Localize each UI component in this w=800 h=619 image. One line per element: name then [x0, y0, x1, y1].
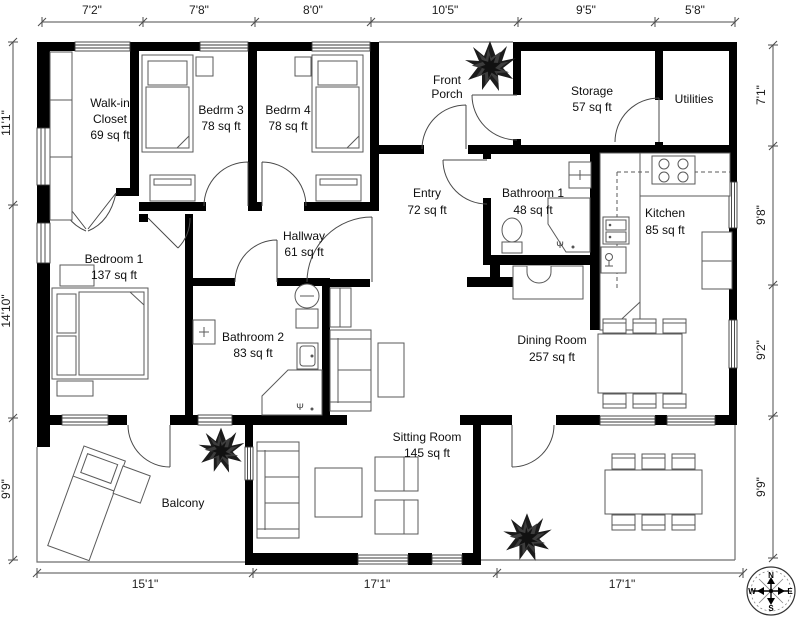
floor-plan-page: 7'2" 7'8" 8'0" 10'5" 9'5" 5'8" 11'1" 14'… [0, 0, 800, 619]
room-name: Porch [431, 87, 462, 101]
window [37, 128, 50, 185]
toilet-icon [295, 284, 319, 328]
dim-right-3: 9'2" [754, 340, 768, 360]
armchair [375, 500, 418, 534]
compass-south: S [768, 604, 774, 613]
furniture: Ψ Ψ [48, 52, 732, 561]
compass-rose: N S W E [747, 567, 795, 615]
sun-lounger [48, 446, 126, 561]
room-area: 257 sq ft [529, 350, 576, 364]
window [62, 415, 108, 425]
room-label-bathroom1: Bathroom 1 48 sq ft [502, 186, 564, 217]
room-name: Bedrm 4 [265, 103, 311, 117]
room-label-walk-in-closet: Walk-in Closet 69 sq ft [90, 96, 130, 142]
dim-right-1: 7'1" [754, 85, 768, 105]
room-area: 72 sq ft [407, 203, 447, 217]
bed-bench [57, 381, 93, 396]
plant-icon [503, 513, 552, 561]
dim-top-5: 9'5" [576, 3, 596, 17]
room-name: Bedrm 3 [198, 103, 244, 117]
stove-icon [652, 156, 695, 184]
plant-icon [465, 41, 516, 92]
window [198, 415, 232, 425]
sink-icon [297, 343, 318, 369]
room-label-storage: Storage 57 sq ft [571, 84, 613, 114]
floor-plan-canvas: 7'2" 7'8" 8'0" 10'5" 9'5" 5'8" 11'1" 14'… [0, 0, 800, 619]
dim-right-2: 9'8" [754, 205, 768, 225]
room-name: Bedroom 1 [85, 252, 144, 266]
window [667, 416, 715, 425]
compass-east: E [787, 587, 793, 596]
balcony-door [128, 425, 170, 467]
sofa [257, 442, 299, 538]
shower: Ψ [262, 370, 322, 415]
bedroom1-door [148, 218, 190, 248]
dim-left-1: 11'1" [0, 110, 13, 136]
room-label-dining-room: Dining Room 257 sq ft [517, 333, 586, 364]
dim-top-4: 10'5" [432, 3, 459, 17]
kitchen-sink-icon [603, 217, 629, 244]
room-area: 48 sq ft [513, 203, 553, 217]
room-name: Dining Room [517, 333, 586, 347]
dim-bottom-1: 15'1" [132, 577, 159, 591]
window [600, 416, 655, 425]
room-name: Closet [93, 112, 128, 126]
room-label-entry: Entry 72 sq ft [407, 186, 447, 217]
dresser [60, 265, 94, 286]
dishwasher-icon [601, 247, 626, 273]
vanity-sink [193, 320, 215, 344]
window [245, 447, 253, 480]
dim-left-2: 14'10" [0, 294, 13, 327]
double-bed [52, 288, 148, 379]
window [200, 42, 248, 51]
room-area: 78 sq ft [201, 119, 241, 133]
room-label-front-porch: Front Porch [431, 73, 462, 101]
bathroom1-door [443, 160, 487, 204]
bedrm3-door [204, 162, 248, 206]
bathroom2-door [235, 240, 277, 282]
bathroom-cabinet [569, 162, 591, 188]
patio-table [605, 454, 702, 530]
room-area: 137 sq ft [91, 268, 138, 282]
window [358, 555, 408, 564]
nightstand [295, 57, 311, 76]
room-name: Entry [413, 186, 441, 200]
compass-west: W [748, 587, 756, 596]
fridge-icon [702, 232, 732, 289]
side-table [378, 343, 404, 397]
dim-left-3: 9'9" [0, 479, 13, 499]
armchair [375, 457, 418, 491]
dim-top-1: 7'2" [82, 3, 102, 17]
single-bed [142, 55, 193, 152]
dim-right-4: 9'9" [754, 477, 768, 497]
dim-top-3: 8'0" [303, 3, 323, 17]
room-label-bedrm3: Bedrm 3 78 sq ft [198, 103, 244, 133]
dim-top-2: 7'8" [189, 3, 209, 17]
room-area: 78 sq ft [268, 119, 308, 133]
storage-utilities-door [615, 98, 659, 142]
room-name: Bathroom 2 [222, 330, 284, 344]
room-name: Sitting Room [393, 430, 462, 444]
compass-north: N [768, 571, 774, 580]
room-name: Bathroom 1 [502, 186, 564, 200]
window [729, 320, 737, 368]
wardrobe [316, 175, 361, 201]
dim-bottom-2: 17'1" [364, 577, 391, 591]
sofa [330, 330, 371, 411]
coffee-table [315, 468, 362, 517]
room-area: 145 sq ft [404, 446, 451, 460]
bedrm4-door [262, 162, 306, 206]
shower-head-icon: Ψ [296, 402, 304, 412]
single-bed [312, 55, 363, 152]
front-door [422, 105, 466, 149]
wardrobe [150, 175, 195, 201]
desk-with-chair [513, 266, 583, 299]
room-label-kitchen: Kitchen 85 sq ft [645, 206, 685, 237]
shower: Ψ [548, 198, 590, 252]
room-label-sitting-room: Sitting Room 145 sq ft [393, 430, 462, 460]
room-label-bedrm4: Bedrm 4 78 sq ft [265, 103, 311, 133]
room-label-utilities: Utilities [675, 92, 714, 106]
window [312, 42, 370, 51]
shower-head-icon: Ψ [556, 240, 564, 250]
room-label-bathroom2: Bathroom 2 83 sq ft [222, 330, 284, 360]
patio-door [512, 425, 554, 467]
room-area: 85 sq ft [645, 223, 685, 237]
room-name: Storage [571, 84, 613, 98]
window [75, 42, 130, 51]
room-area: 69 sq ft [90, 128, 130, 142]
dining-table [598, 319, 686, 408]
room-label-balcony: Balcony [162, 496, 205, 510]
room-name: Front [433, 73, 462, 87]
dim-top-6: 5'8" [685, 3, 705, 17]
room-name: Kitchen [645, 206, 685, 220]
room-name: Walk-in [90, 96, 130, 110]
nightstand [196, 57, 213, 76]
room-area: 61 sq ft [284, 245, 324, 259]
dim-bottom-3: 17'1" [609, 577, 636, 591]
closet-shelves [50, 52, 72, 220]
tall-cabinet [330, 288, 351, 327]
porch-storage-door [472, 95, 517, 140]
room-name: Hallway [283, 229, 325, 243]
plant-icon [199, 428, 245, 474]
window [432, 555, 462, 564]
room-area: 83 sq ft [233, 346, 273, 360]
window [37, 223, 50, 263]
toilet-icon [502, 218, 522, 253]
room-area: 57 sq ft [572, 100, 612, 114]
